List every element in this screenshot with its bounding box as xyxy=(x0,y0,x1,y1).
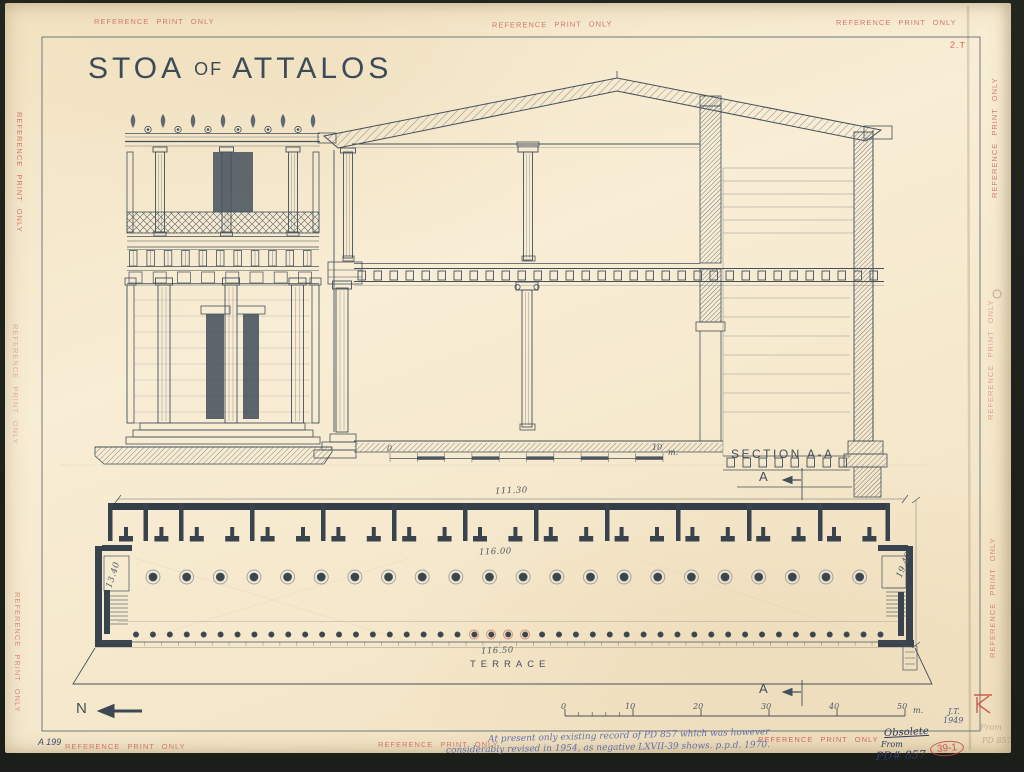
title-word-1: STOA xyxy=(88,52,185,85)
pencil-note-from: From xyxy=(980,723,1002,732)
stamp-top-left: REFERENCE PRINT ONLY xyxy=(94,17,215,26)
section-scale-unit: m. xyxy=(668,448,678,457)
plan-scale-0: 0 xyxy=(561,702,566,711)
section-scale-ten: 10 xyxy=(652,443,662,452)
plan-scale-10: 10 xyxy=(625,702,635,711)
plan-scale-40: 40 xyxy=(829,702,839,711)
stamp-right-middle: REFERENCE PRINT ONLY xyxy=(986,299,995,420)
scanned-drawing-sheet: STOAOFATTALOS REFERENCE PRINT ONLY REFER… xyxy=(0,0,1024,772)
page-title: STOAOFATTALOS xyxy=(88,52,392,86)
section-label: SECTION A-A xyxy=(731,447,835,461)
terrace-label: TERRACE xyxy=(470,659,550,670)
section-scale-zero: 0 xyxy=(387,444,392,453)
dimension-plan-terrace: 116.50 xyxy=(481,645,514,656)
stamp-left-middle: REFERENCE PRINT ONLY xyxy=(11,324,20,445)
plan-scale-30: 30 xyxy=(761,702,771,711)
plan-scale-20: 20 xyxy=(693,702,703,711)
stamp-top-right: REFERENCE PRINT ONLY xyxy=(836,18,957,27)
north-label: N xyxy=(76,700,87,717)
from-note: From xyxy=(881,740,903,749)
dimension-plan-top: 111.30 xyxy=(495,485,528,496)
corner-mark: 2.T xyxy=(950,40,966,51)
stamp-left-lower: REFERENCE PRINT ONLY xyxy=(13,592,22,713)
plan-scale-50: 50 xyxy=(897,702,907,711)
credit-year: 1949 xyxy=(943,716,963,725)
stamp-right-lower: REFERENCE PRINT ONLY xyxy=(988,537,997,658)
dimension-plan-stylobate: 116.00 xyxy=(479,546,512,557)
credit-initials: J.T. xyxy=(948,707,960,716)
obsolete-note: Obsolete xyxy=(884,726,929,739)
plan-scale-unit: m. xyxy=(913,706,923,715)
marker-letter-top: A xyxy=(759,469,769,484)
title-word-2: OF xyxy=(194,59,223,79)
pd-number-note: PD# 857 xyxy=(876,748,926,763)
stamp-left-upper: REFERENCE PRINT ONLY xyxy=(15,112,24,233)
marker-letter-bottom: A xyxy=(759,681,769,696)
stamp-top-center: REFERENCE PRINT ONLY xyxy=(492,19,613,29)
paper xyxy=(5,3,1011,753)
stamp-bottom-left: REFERENCE PRINT ONLY xyxy=(65,742,186,751)
sheet-number: A 199 xyxy=(38,737,61,747)
title-word-3: ATTALOS xyxy=(232,52,392,85)
pencil-note-pd: PD 857 xyxy=(982,736,1012,745)
stamp-bottom-right: REFERENCE PRINT ONLY xyxy=(758,735,879,744)
stamp-right-upper: REFERENCE PRINT ONLY xyxy=(990,77,999,198)
